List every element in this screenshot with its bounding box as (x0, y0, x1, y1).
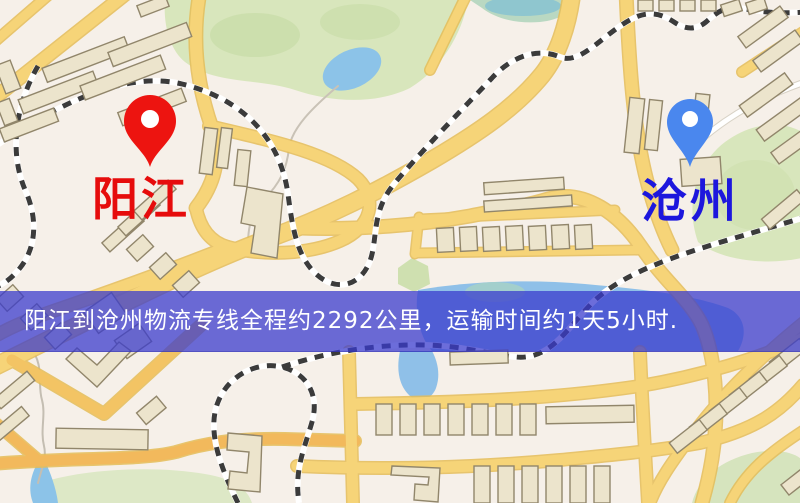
basemap (0, 0, 800, 503)
pin-shape (667, 99, 713, 167)
map-canvas: 阳江 沧州 阳江到沧州物流专线全程约2292公里，运输时间约1天5小时. (0, 0, 800, 503)
pin-shape (124, 95, 176, 167)
route-info-banner: 阳江到沧州物流专线全程约2292公里，运输时间约1天5小时. (0, 291, 800, 352)
destination-pin[interactable] (666, 99, 714, 167)
origin-pin[interactable] (123, 95, 177, 167)
origin-city-label: 阳江 (92, 176, 190, 222)
pin-hole (682, 111, 698, 127)
pin-hole (141, 110, 159, 128)
route-info-text: 阳江到沧州物流专线全程约2292公里，运输时间约1天5小时. (24, 291, 678, 351)
destination-city-label: 沧州 (641, 178, 739, 224)
